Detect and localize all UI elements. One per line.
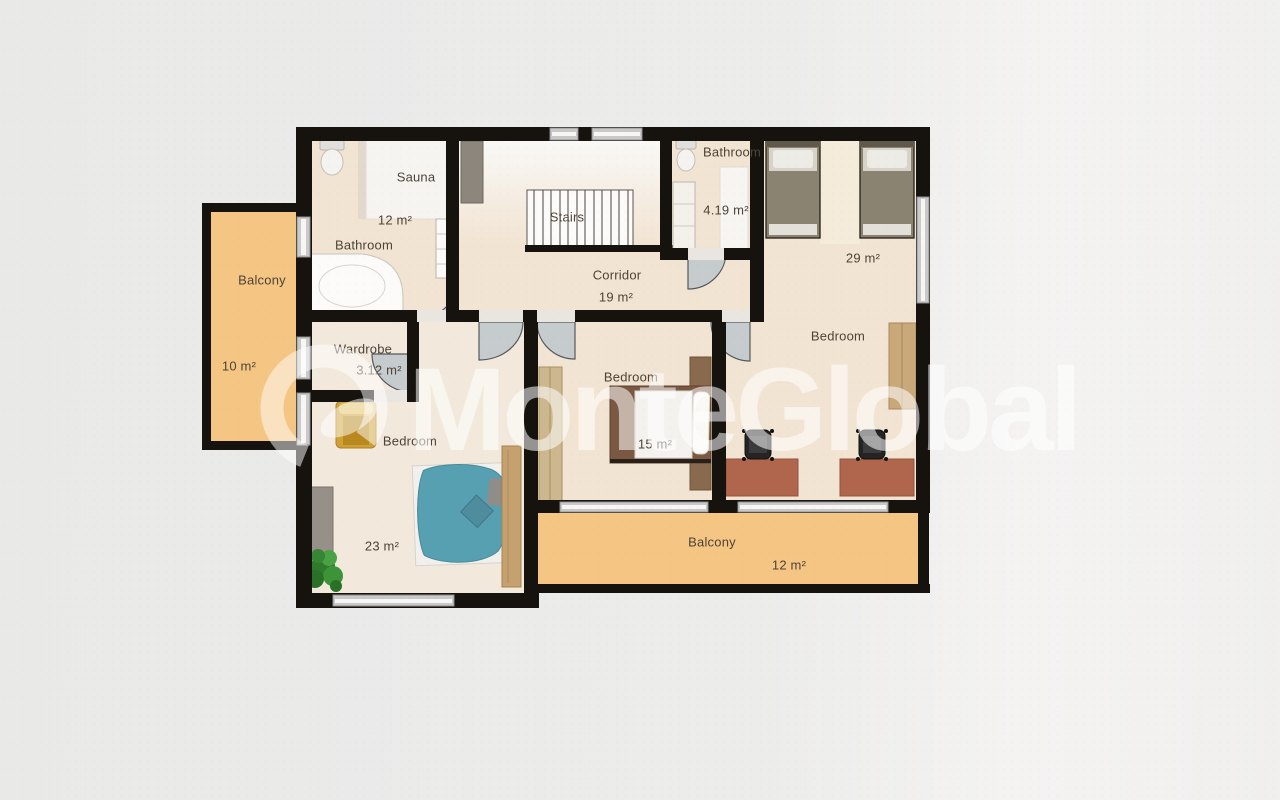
bed-icon: [860, 141, 914, 238]
wardrobe-icon: [539, 367, 562, 503]
toilet-small-icon: [676, 140, 696, 171]
room-label-bedroom-middle: Bedroom: [604, 370, 658, 385]
dresser-icon: [311, 487, 333, 553]
room-area-bathroom-main: 12 m²: [378, 213, 412, 228]
room-label-bedroom-left: Bedroom: [383, 434, 437, 449]
armchair-icon: [336, 401, 376, 448]
room-label-balcony-left: Balcony: [238, 273, 286, 288]
office-chair-icon: [856, 429, 888, 461]
room-label-bathroom-main: Bathroom: [335, 238, 393, 253]
room-label-bathroom-small: Bathroom: [703, 145, 761, 160]
room-area-bedroom-large: 29 m²: [846, 251, 880, 266]
room-area-wardrobe: 3.12 m²: [356, 363, 401, 378]
bathroom-cabinet: [673, 182, 695, 249]
balcony-left: [202, 203, 312, 450]
room-label-balcony-bottom: Balcony: [688, 535, 736, 550]
room-area-balcony-left: 10 m²: [222, 359, 256, 374]
office-chair-icon: [742, 429, 774, 461]
room-label-wardrobe: Wardrobe: [334, 342, 392, 357]
desk-icon: [726, 459, 798, 496]
room-label-bedroom-large: Bedroom: [811, 329, 865, 344]
room-label-sauna: Sauna: [397, 170, 436, 185]
room-label-corridor: Corridor: [593, 268, 642, 283]
room-label-stairs: Stairs: [550, 210, 584, 225]
nightstand-strip: [502, 446, 521, 587]
bed-icon: [766, 141, 820, 238]
room-area-bedroom-middle: 15 m²: [638, 437, 672, 452]
room-area-bedroom-left: 23 m²: [365, 539, 399, 554]
floor-plan: Balcony 10 m² Sauna 12 m² Bathroom Stair…: [0, 0, 1280, 800]
toilet-icon: [320, 140, 344, 175]
room-area-bathroom-small: 4.19 m²: [703, 203, 748, 218]
desk-icon: [840, 459, 914, 496]
room-area-balcony-bottom: 12 m²: [772, 558, 806, 573]
floor-plan-canvas: [0, 0, 1280, 800]
room-area-corridor: 19 m²: [599, 290, 633, 305]
stair-closet: [461, 141, 483, 203]
bedroom-large-floor-strip: [820, 141, 860, 244]
